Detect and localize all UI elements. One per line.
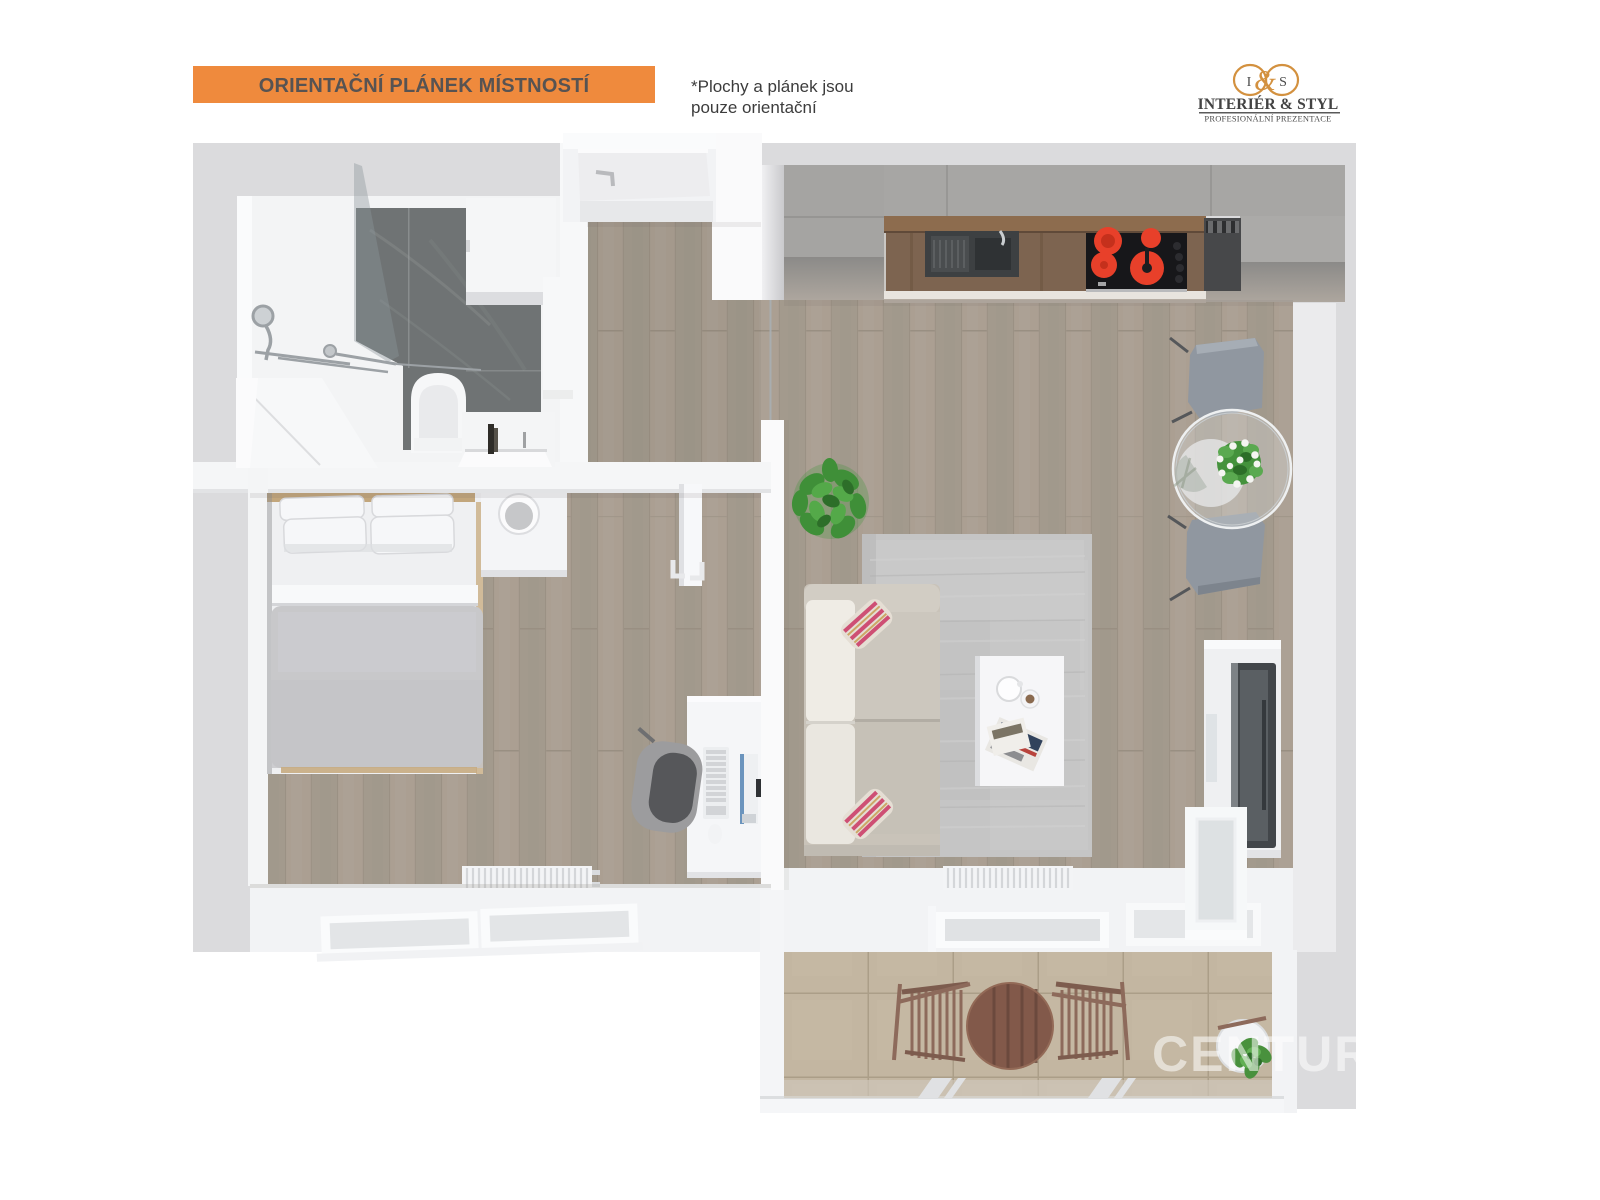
- svg-text:pouze orientační: pouze orientační: [691, 98, 817, 117]
- svg-text:*Plochy a plánek jsou: *Plochy a plánek jsou: [691, 77, 854, 96]
- svg-text:S: S: [1279, 75, 1287, 90]
- svg-text:INTERIÉR & STYL: INTERIÉR & STYL: [1198, 96, 1339, 113]
- svg-text:ORIENTAČNÍ PLÁNEK MÍSTNOSTÍ: ORIENTAČNÍ PLÁNEK MÍSTNOSTÍ: [259, 73, 590, 97]
- svg-text:&: &: [1254, 66, 1276, 97]
- svg-text:I: I: [1247, 75, 1252, 90]
- svg-text:PROFESIONÁLNÍ PREZENTACE: PROFESIONÁLNÍ PREZENTACE: [1204, 114, 1331, 124]
- svg-text:CENTUR: CENTUR: [1152, 1026, 1372, 1082]
